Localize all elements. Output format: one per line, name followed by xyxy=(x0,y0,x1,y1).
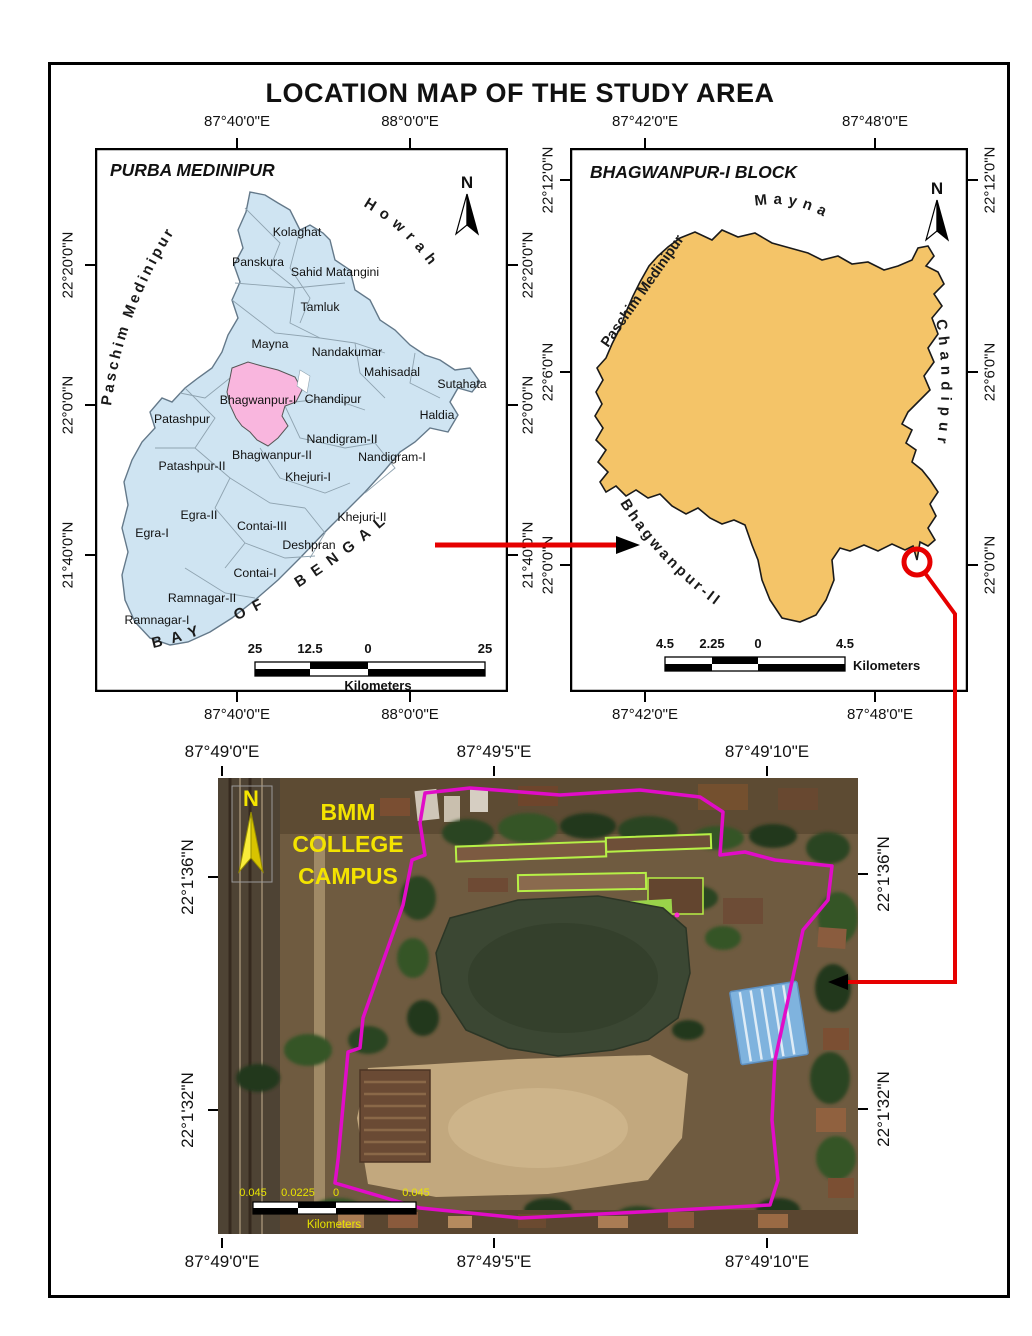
longitude-tick xyxy=(409,138,411,148)
longitude-label: 87°49'5"E xyxy=(457,1252,532,1272)
longitude-tick xyxy=(409,692,411,702)
block-label: Patashpur xyxy=(154,412,210,426)
block-label: Mayna xyxy=(252,337,289,351)
longitude-tick xyxy=(644,138,646,148)
latitude-tick xyxy=(968,564,978,566)
latitude-tick xyxy=(508,264,518,266)
longitude-tick xyxy=(221,1238,223,1248)
latitude-tick xyxy=(85,264,95,266)
latitude-tick xyxy=(85,554,95,556)
latitude-label: 22°6'0"N xyxy=(982,343,999,401)
svg-text:N: N xyxy=(461,173,473,192)
block-label: Sahid Matangini xyxy=(291,265,379,279)
block-label: Contai-III xyxy=(237,519,287,533)
latitude-label: 22°0'0"N xyxy=(540,536,557,594)
svg-text:25: 25 xyxy=(248,641,262,656)
latitude-tick xyxy=(560,371,570,373)
block-label: Nandigram-I xyxy=(358,450,426,464)
svg-text:0.045: 0.045 xyxy=(402,1187,430,1199)
longitude-label: 87°49'0"E xyxy=(185,742,260,762)
longitude-label: 88°0'0"E xyxy=(381,706,439,723)
latitude-label: 22°0'0"N xyxy=(982,536,999,594)
latitude-label: 22°12'0"N xyxy=(540,147,557,214)
block-label: Panskura xyxy=(232,255,284,269)
longitude-tick xyxy=(236,692,238,702)
block-label: Patashpur-II xyxy=(159,459,226,473)
page-title: LOCATION MAP OF THE STUDY AREA xyxy=(265,78,774,109)
latitude-label: 21°40'0"N xyxy=(520,522,537,589)
svg-text:0: 0 xyxy=(333,1187,339,1199)
latitude-tick xyxy=(858,873,868,875)
block-label: Ramnagar-II xyxy=(168,591,236,605)
latitude-label: 22°1'36"N xyxy=(874,836,894,912)
block-label: Ramnagar-I xyxy=(125,613,190,627)
latitude-label: 22°20'0"N xyxy=(60,232,77,299)
latitude-label: 22°1'36"N xyxy=(178,839,198,915)
latitude-tick xyxy=(968,371,978,373)
longitude-tick xyxy=(874,138,876,148)
district-map-panel: Paschim Medinipur Howrah BAY OF BENGAL K… xyxy=(95,148,508,692)
svg-text:4.5: 4.5 xyxy=(656,636,674,651)
latitude-tick xyxy=(858,1108,868,1110)
latitude-tick xyxy=(85,404,95,406)
longitude-label: 87°49'5"E xyxy=(457,742,532,762)
satellite-map-panel: N BMM COLLEGE CAMPUS 0.045 0.0225 0 0.04… xyxy=(218,778,858,1234)
block-label: Nandigram-II xyxy=(306,432,377,446)
latitude-tick xyxy=(208,1109,218,1111)
latitude-label: 22°0'0"N xyxy=(60,376,77,434)
svg-text:N: N xyxy=(243,786,259,811)
block-label: Contai-I xyxy=(233,566,276,580)
latitude-label: 22°20'0"N xyxy=(520,232,537,299)
longitude-label: 87°49'10"E xyxy=(725,1252,809,1272)
gallery-terraces xyxy=(360,1070,430,1162)
field-bare-patch xyxy=(448,1088,628,1168)
block-label: Bhagwanpur-II xyxy=(232,448,312,462)
survey-point xyxy=(675,913,680,918)
block-label: Khejuri-I xyxy=(285,470,331,484)
longitude-tick xyxy=(236,138,238,148)
svg-text:2.25: 2.25 xyxy=(699,636,724,651)
longitude-label: 87°42'0"E xyxy=(612,706,678,723)
longitude-tick xyxy=(221,766,223,776)
block-label: Tamluk xyxy=(301,300,341,314)
block-label: Haldia xyxy=(420,408,455,422)
longitude-tick xyxy=(493,1238,495,1248)
block-map-panel: Mayna Chandipur Bhagwanpur-II Paschim Me… xyxy=(570,148,968,692)
map-title: PURBA MEDINIPUR xyxy=(110,160,275,180)
map-title: BHAGWANPUR-I BLOCK xyxy=(590,162,798,182)
block-label: Nandakumar xyxy=(312,345,382,359)
svg-text:0: 0 xyxy=(754,636,761,651)
scale-unit: Kilometers xyxy=(307,1219,362,1231)
longitude-label: 87°48'0"E xyxy=(842,113,908,130)
longitude-tick xyxy=(493,766,495,776)
latitude-label: 22°1'32"N xyxy=(874,1071,894,1147)
longitude-tick xyxy=(766,766,768,776)
block-label: Mahisadal xyxy=(364,365,420,379)
scale-unit: Kilometers xyxy=(344,678,411,692)
block-label: Egra-I xyxy=(135,526,169,540)
svg-text:0: 0 xyxy=(364,641,371,656)
longitude-label: 87°49'10"E xyxy=(725,742,809,762)
svg-text:12.5: 12.5 xyxy=(297,641,322,656)
latitude-label: 22°0'0"N xyxy=(520,376,537,434)
latitude-label: 21°40'0"N xyxy=(60,522,77,589)
block-label: Deshpran xyxy=(282,538,335,552)
svg-text:4.5: 4.5 xyxy=(836,636,854,651)
longitude-label: 87°40'0"E xyxy=(204,706,270,723)
latitude-tick xyxy=(508,554,518,556)
blue-roof-building xyxy=(730,981,809,1065)
longitude-label: 87°49'0"E xyxy=(185,1252,260,1272)
svg-text:0.045: 0.045 xyxy=(239,1187,267,1199)
latitude-label: 22°1'32"N xyxy=(178,1072,198,1148)
svg-text:25: 25 xyxy=(478,641,492,656)
latitude-tick xyxy=(560,564,570,566)
caption-line: BMM xyxy=(321,799,376,825)
scale-unit: Kilometers xyxy=(853,658,920,673)
longitude-label: 87°48'0"E xyxy=(847,706,913,723)
latitude-label: 22°12'0"N xyxy=(982,147,999,214)
block-label: Khejuri-II xyxy=(337,510,386,524)
block-label: Egra-II xyxy=(181,508,218,522)
longitude-label: 88°0'0"E xyxy=(381,113,439,130)
block-label-highlighted: Bhagwanpur-I xyxy=(220,393,297,407)
svg-text:N: N xyxy=(931,179,943,198)
caption-line: CAMPUS xyxy=(298,863,398,889)
caption-line: COLLEGE xyxy=(292,831,403,857)
latitude-tick xyxy=(508,404,518,406)
longitude-tick xyxy=(766,1238,768,1248)
latitude-tick xyxy=(560,179,570,181)
longitude-tick xyxy=(644,692,646,702)
block-label: Chandipur xyxy=(305,392,362,406)
pond-deep-water xyxy=(468,923,658,1033)
svg-text:0.0225: 0.0225 xyxy=(281,1187,315,1199)
longitude-label: 87°42'0"E xyxy=(612,113,678,130)
longitude-label: 87°40'0"E xyxy=(204,113,270,130)
latitude-tick xyxy=(968,179,978,181)
latitude-label: 22°6'0"N xyxy=(540,343,557,401)
latitude-tick xyxy=(208,876,218,878)
longitude-tick xyxy=(874,692,876,702)
location-map-figure: { "title": "LOCATION MAP OF THE STUDY AR… xyxy=(0,0,1032,1336)
block-label: Sutahata xyxy=(437,377,486,391)
block-label: Kolaghat xyxy=(273,225,322,239)
